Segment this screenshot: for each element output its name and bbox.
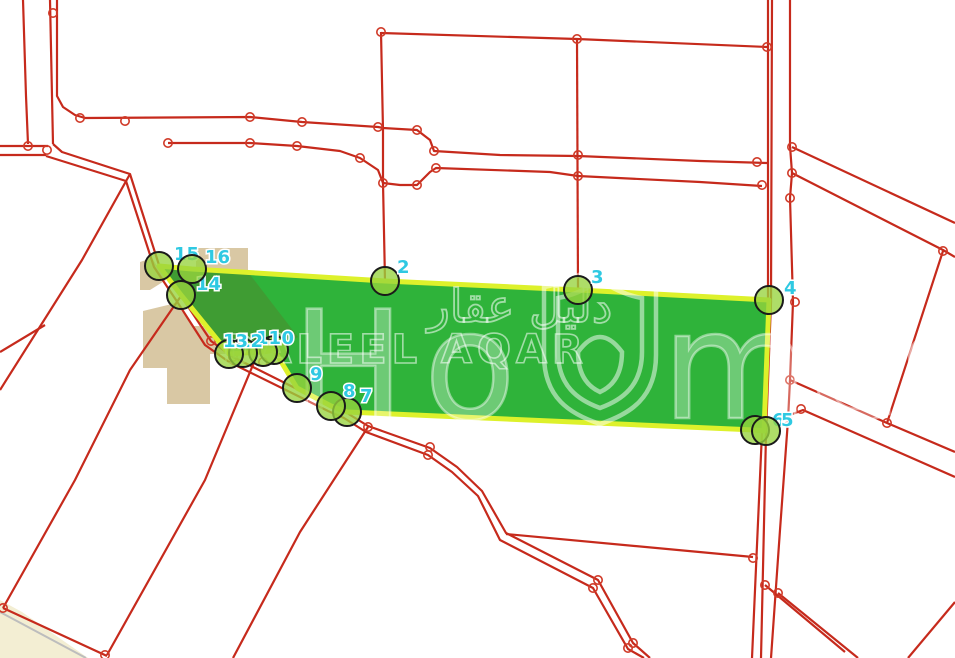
parcel-boundary-line xyxy=(0,174,130,390)
parcel-boundary-line xyxy=(168,143,762,186)
vertex-label-7: 7 xyxy=(360,386,373,407)
vertex-label-4: 4 xyxy=(784,278,797,299)
vertex-label-3: 3 xyxy=(591,267,604,288)
parcel-boundary-line xyxy=(381,32,385,281)
vertex-label-5: 5 xyxy=(781,410,794,431)
parcel-boundary-line xyxy=(23,0,28,144)
parcel-boundary-line xyxy=(790,410,955,477)
cream-area-shape xyxy=(0,600,88,658)
corner-cream-area xyxy=(0,600,88,658)
vertex-label-16: 16 xyxy=(205,247,230,268)
parcel-boundary-line xyxy=(233,427,368,658)
vertex-label-2: 2 xyxy=(397,257,410,278)
vertex-marker-9[interactable] xyxy=(283,374,311,402)
parcel-boundary-line xyxy=(771,0,793,658)
cadastral-map-canvas[interactable]: دليل عقار DALEEL AQAR H o mes 2346578910… xyxy=(0,0,955,658)
vertex-label-8: 8 xyxy=(343,381,356,402)
parcel-boundary-line xyxy=(107,360,255,655)
vertex-marker-8[interactable] xyxy=(317,392,345,420)
vertex-marker-5[interactable] xyxy=(752,417,780,445)
vertex-marker-15[interactable] xyxy=(145,252,173,280)
parcel-boundary-line xyxy=(57,0,767,163)
vertex-marker-16[interactable] xyxy=(178,255,206,283)
vertex-marker-14[interactable] xyxy=(167,281,195,309)
parcel-boundary-line xyxy=(765,585,845,652)
vertex-label-13: 13 xyxy=(223,331,248,352)
parcel-boundary-line xyxy=(887,251,943,423)
vertex-marker-4[interactable] xyxy=(755,286,783,314)
map-viewport[interactable]: دليل عقار DALEEL AQAR H o mes 2346578910… xyxy=(0,0,955,658)
parcel-boundary-line xyxy=(778,593,858,658)
parcel-boundary-line xyxy=(908,602,955,658)
parcel-boundary-line xyxy=(50,0,53,144)
parcel-boundary-line xyxy=(506,534,753,557)
vertex-label-9: 9 xyxy=(310,364,323,385)
parcel-boundary-line xyxy=(0,325,45,352)
parcel-boundary-line xyxy=(577,39,578,290)
vertex-marker-2[interactable] xyxy=(371,267,399,295)
vertex-marker-3[interactable] xyxy=(564,276,592,304)
